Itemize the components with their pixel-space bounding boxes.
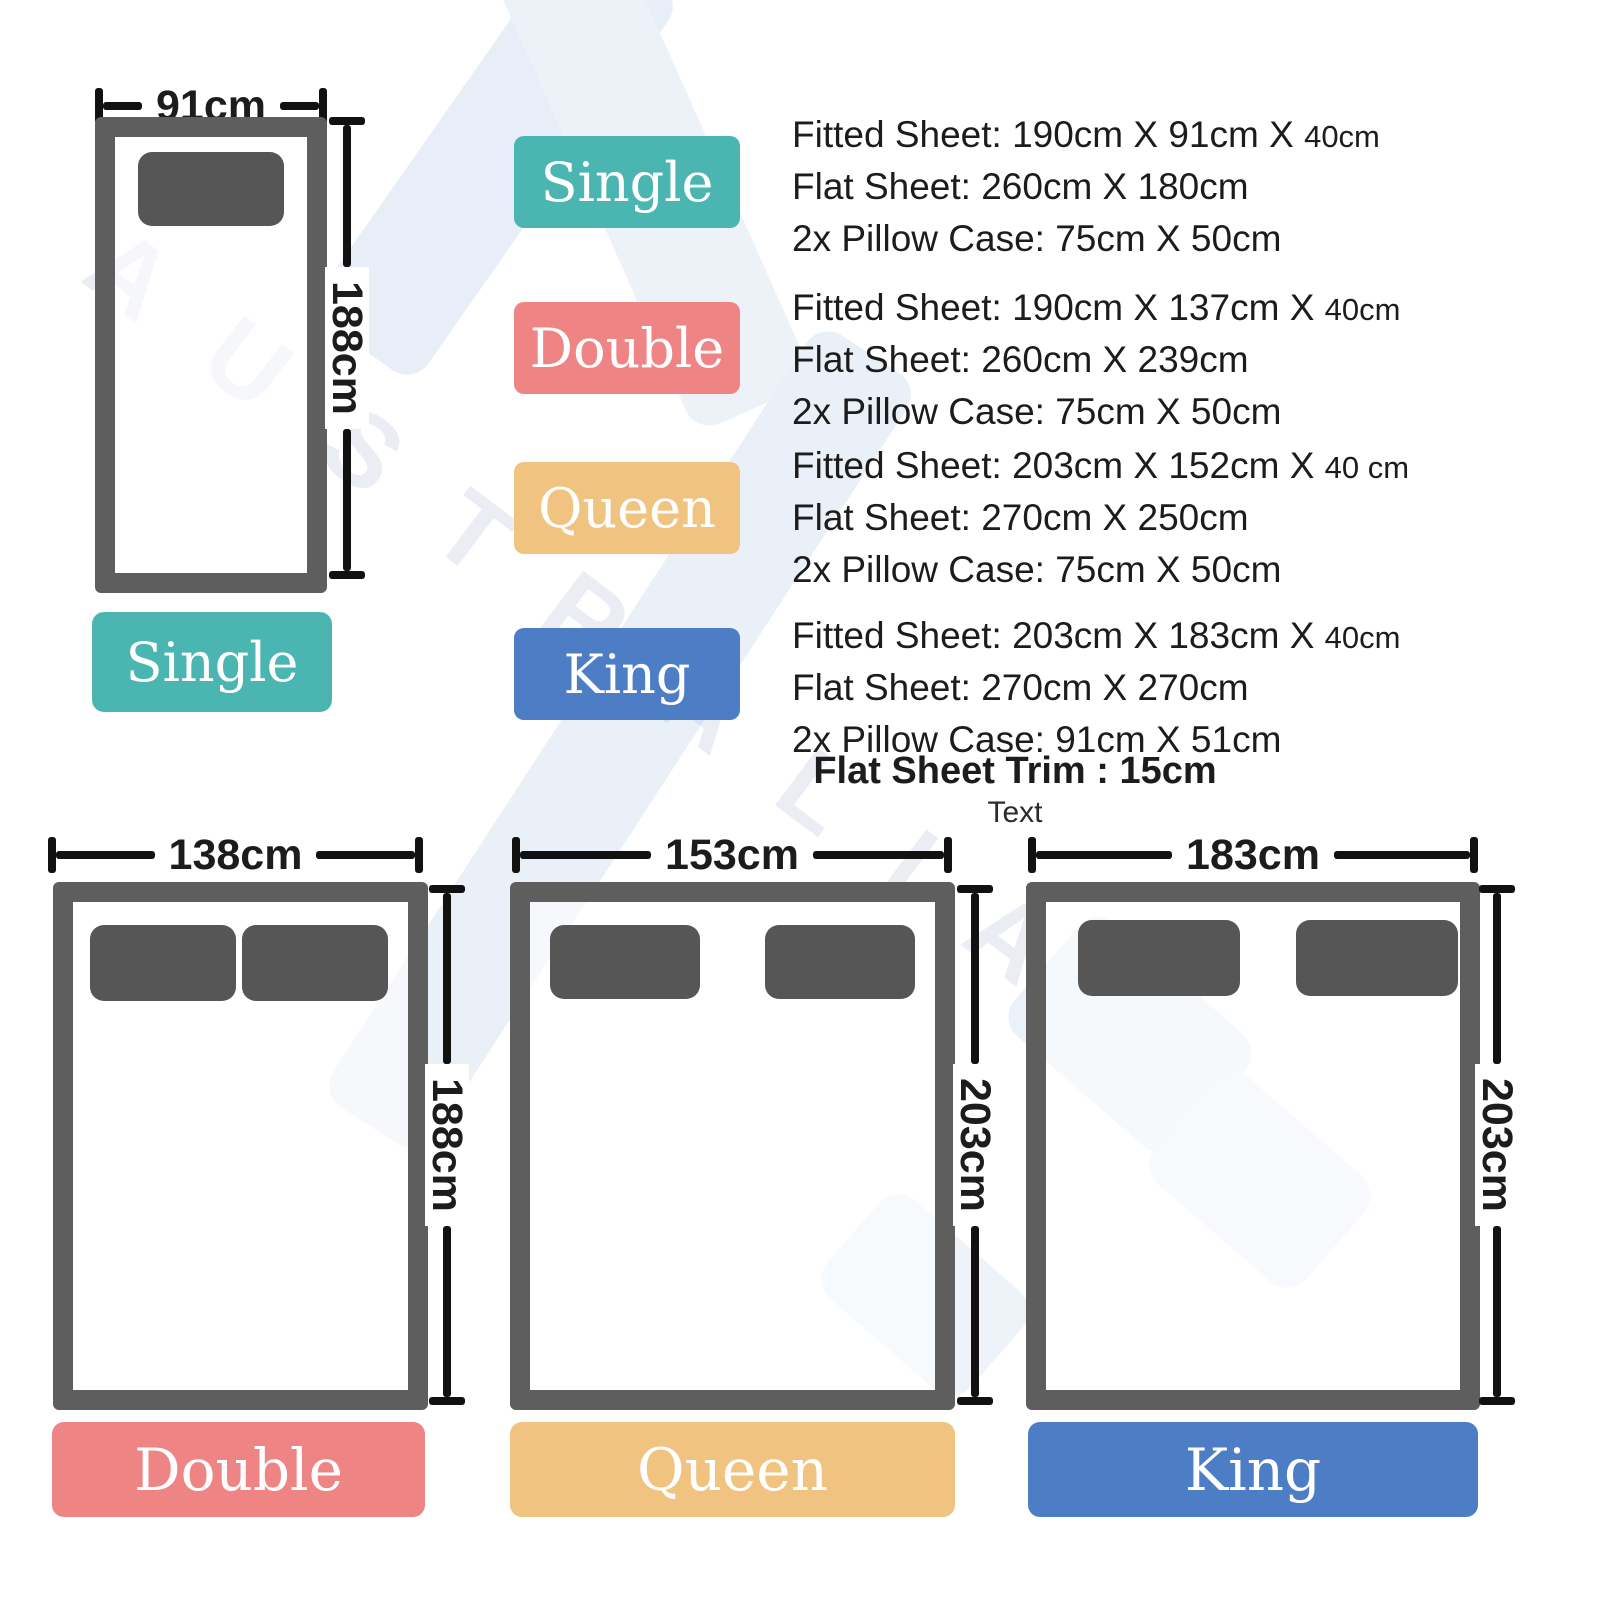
dimension-tick: [1479, 885, 1515, 893]
size-chip-label: Queen: [538, 477, 716, 540]
king-pillow-right: [1296, 920, 1458, 996]
king-height-label: 203cm: [1475, 1064, 1519, 1226]
dimension-line: [1493, 893, 1501, 1064]
king-specs: Fitted Sheet: 203cm X 183cm X 40cm Flat …: [792, 611, 1400, 767]
dimension-line: [56, 851, 155, 859]
dimension-line: [971, 1226, 979, 1397]
spec-line: 2x Pillow Case: 75cm X 50cm: [792, 214, 1380, 266]
double-width-label: 138cm: [155, 832, 317, 879]
dimension-tick: [48, 837, 56, 873]
dimension-line: [971, 893, 979, 1064]
single-specs: Fitted Sheet: 190cm X 91cm X 40cm Flat S…: [792, 110, 1380, 266]
bedding-size-chart: AUSTRALIA 91cm 188cm Single Single Doubl…: [0, 0, 1600, 1600]
spec-line: Flat Sheet: 260cm X 239cm: [792, 335, 1400, 387]
queen-height-dimension: 203cm: [953, 885, 997, 1405]
size-chip-queen: Queen: [514, 462, 740, 554]
dimension-tick: [1479, 1397, 1515, 1405]
dimension-line: [443, 893, 451, 1064]
queen-banner: Queen: [510, 1422, 955, 1517]
flat-sheet-trim-note: Flat Sheet Trim : 15cm: [790, 748, 1240, 794]
dimension-line: [103, 102, 142, 110]
dimension-tick: [329, 571, 365, 579]
spec-line: 2x Pillow Case: 75cm X 50cm: [792, 387, 1400, 439]
double-specs: Fitted Sheet: 190cm X 137cm X 40cm Flat …: [792, 283, 1400, 439]
queen-width-dimension: 153cm: [512, 833, 952, 877]
dimension-tick: [429, 1397, 465, 1405]
queen-width-label: 153cm: [651, 832, 813, 879]
dimension-tick: [944, 837, 952, 873]
text-footnote: Text: [790, 794, 1240, 832]
spec-line: Fitted Sheet: 190cm X 137cm X 40cm: [792, 283, 1400, 335]
king-width-dimension: 183cm: [1028, 833, 1478, 877]
dimension-tick: [329, 117, 365, 125]
dimension-tick: [1028, 837, 1036, 873]
spec-line: Flat Sheet: 260cm X 180cm: [792, 162, 1380, 214]
spec-line: Flat Sheet: 270cm X 250cm: [792, 493, 1409, 545]
king-height-dimension: 203cm: [1475, 885, 1519, 1405]
single-banner: Single: [92, 612, 332, 712]
dimension-line: [813, 851, 944, 859]
queen-banner-label: Queen: [637, 1436, 828, 1504]
queen-height-label: 203cm: [953, 1064, 997, 1226]
dimension-line: [443, 1226, 451, 1397]
dimension-line: [343, 429, 351, 571]
size-chip-single: Single: [514, 136, 740, 228]
dimension-line: [1493, 1226, 1501, 1397]
double-height-dimension: 188cm: [425, 885, 469, 1405]
dimension-line: [1334, 851, 1470, 859]
size-chip-double: Double: [514, 302, 740, 394]
dimension-line: [343, 125, 351, 267]
size-chip-label: Double: [530, 317, 724, 380]
queen-pillow-left: [550, 925, 700, 999]
single-height-label: 188cm: [325, 267, 369, 429]
double-pillow-left: [90, 925, 236, 1001]
queen-specs: Fitted Sheet: 203cm X 152cm X 40 cm Flat…: [792, 441, 1409, 597]
single-height-dimension: 188cm: [325, 117, 369, 579]
king-width-label: 183cm: [1172, 832, 1334, 879]
size-chip-label: King: [564, 643, 691, 706]
notes: Flat Sheet Trim : 15cm Text: [790, 748, 1240, 832]
single-pillow: [138, 152, 284, 226]
king-pillow-left: [1078, 920, 1240, 996]
spec-line: Fitted Sheet: 203cm X 183cm X 40cm: [792, 611, 1400, 663]
spec-line: 2x Pillow Case: 75cm X 50cm: [792, 545, 1409, 597]
spec-line: Fitted Sheet: 190cm X 91cm X 40cm: [792, 110, 1380, 162]
dimension-line: [1036, 851, 1172, 859]
single-banner-label: Single: [126, 631, 299, 694]
spec-line: Fitted Sheet: 203cm X 152cm X 40 cm: [792, 441, 1409, 493]
double-width-dimension: 138cm: [48, 833, 423, 877]
dimension-tick: [1470, 837, 1478, 873]
dimension-line: [316, 851, 415, 859]
dimension-tick: [957, 885, 993, 893]
dimension-line: [520, 851, 651, 859]
king-banner-label: King: [1185, 1436, 1321, 1504]
double-pillow-right: [242, 925, 388, 1001]
size-chip-king: King: [514, 628, 740, 720]
double-banner: Double: [52, 1422, 425, 1517]
king-banner: King: [1028, 1422, 1478, 1517]
dimension-line: [280, 102, 319, 110]
double-height-label: 188cm: [425, 1064, 469, 1226]
queen-pillow-right: [765, 925, 915, 999]
dimension-tick: [415, 837, 423, 873]
dimension-tick: [512, 837, 520, 873]
spec-line: Flat Sheet: 270cm X 270cm: [792, 663, 1400, 715]
dimension-tick: [429, 885, 465, 893]
dimension-tick: [957, 1397, 993, 1405]
double-banner-label: Double: [134, 1436, 343, 1504]
size-chip-label: Single: [541, 151, 714, 214]
